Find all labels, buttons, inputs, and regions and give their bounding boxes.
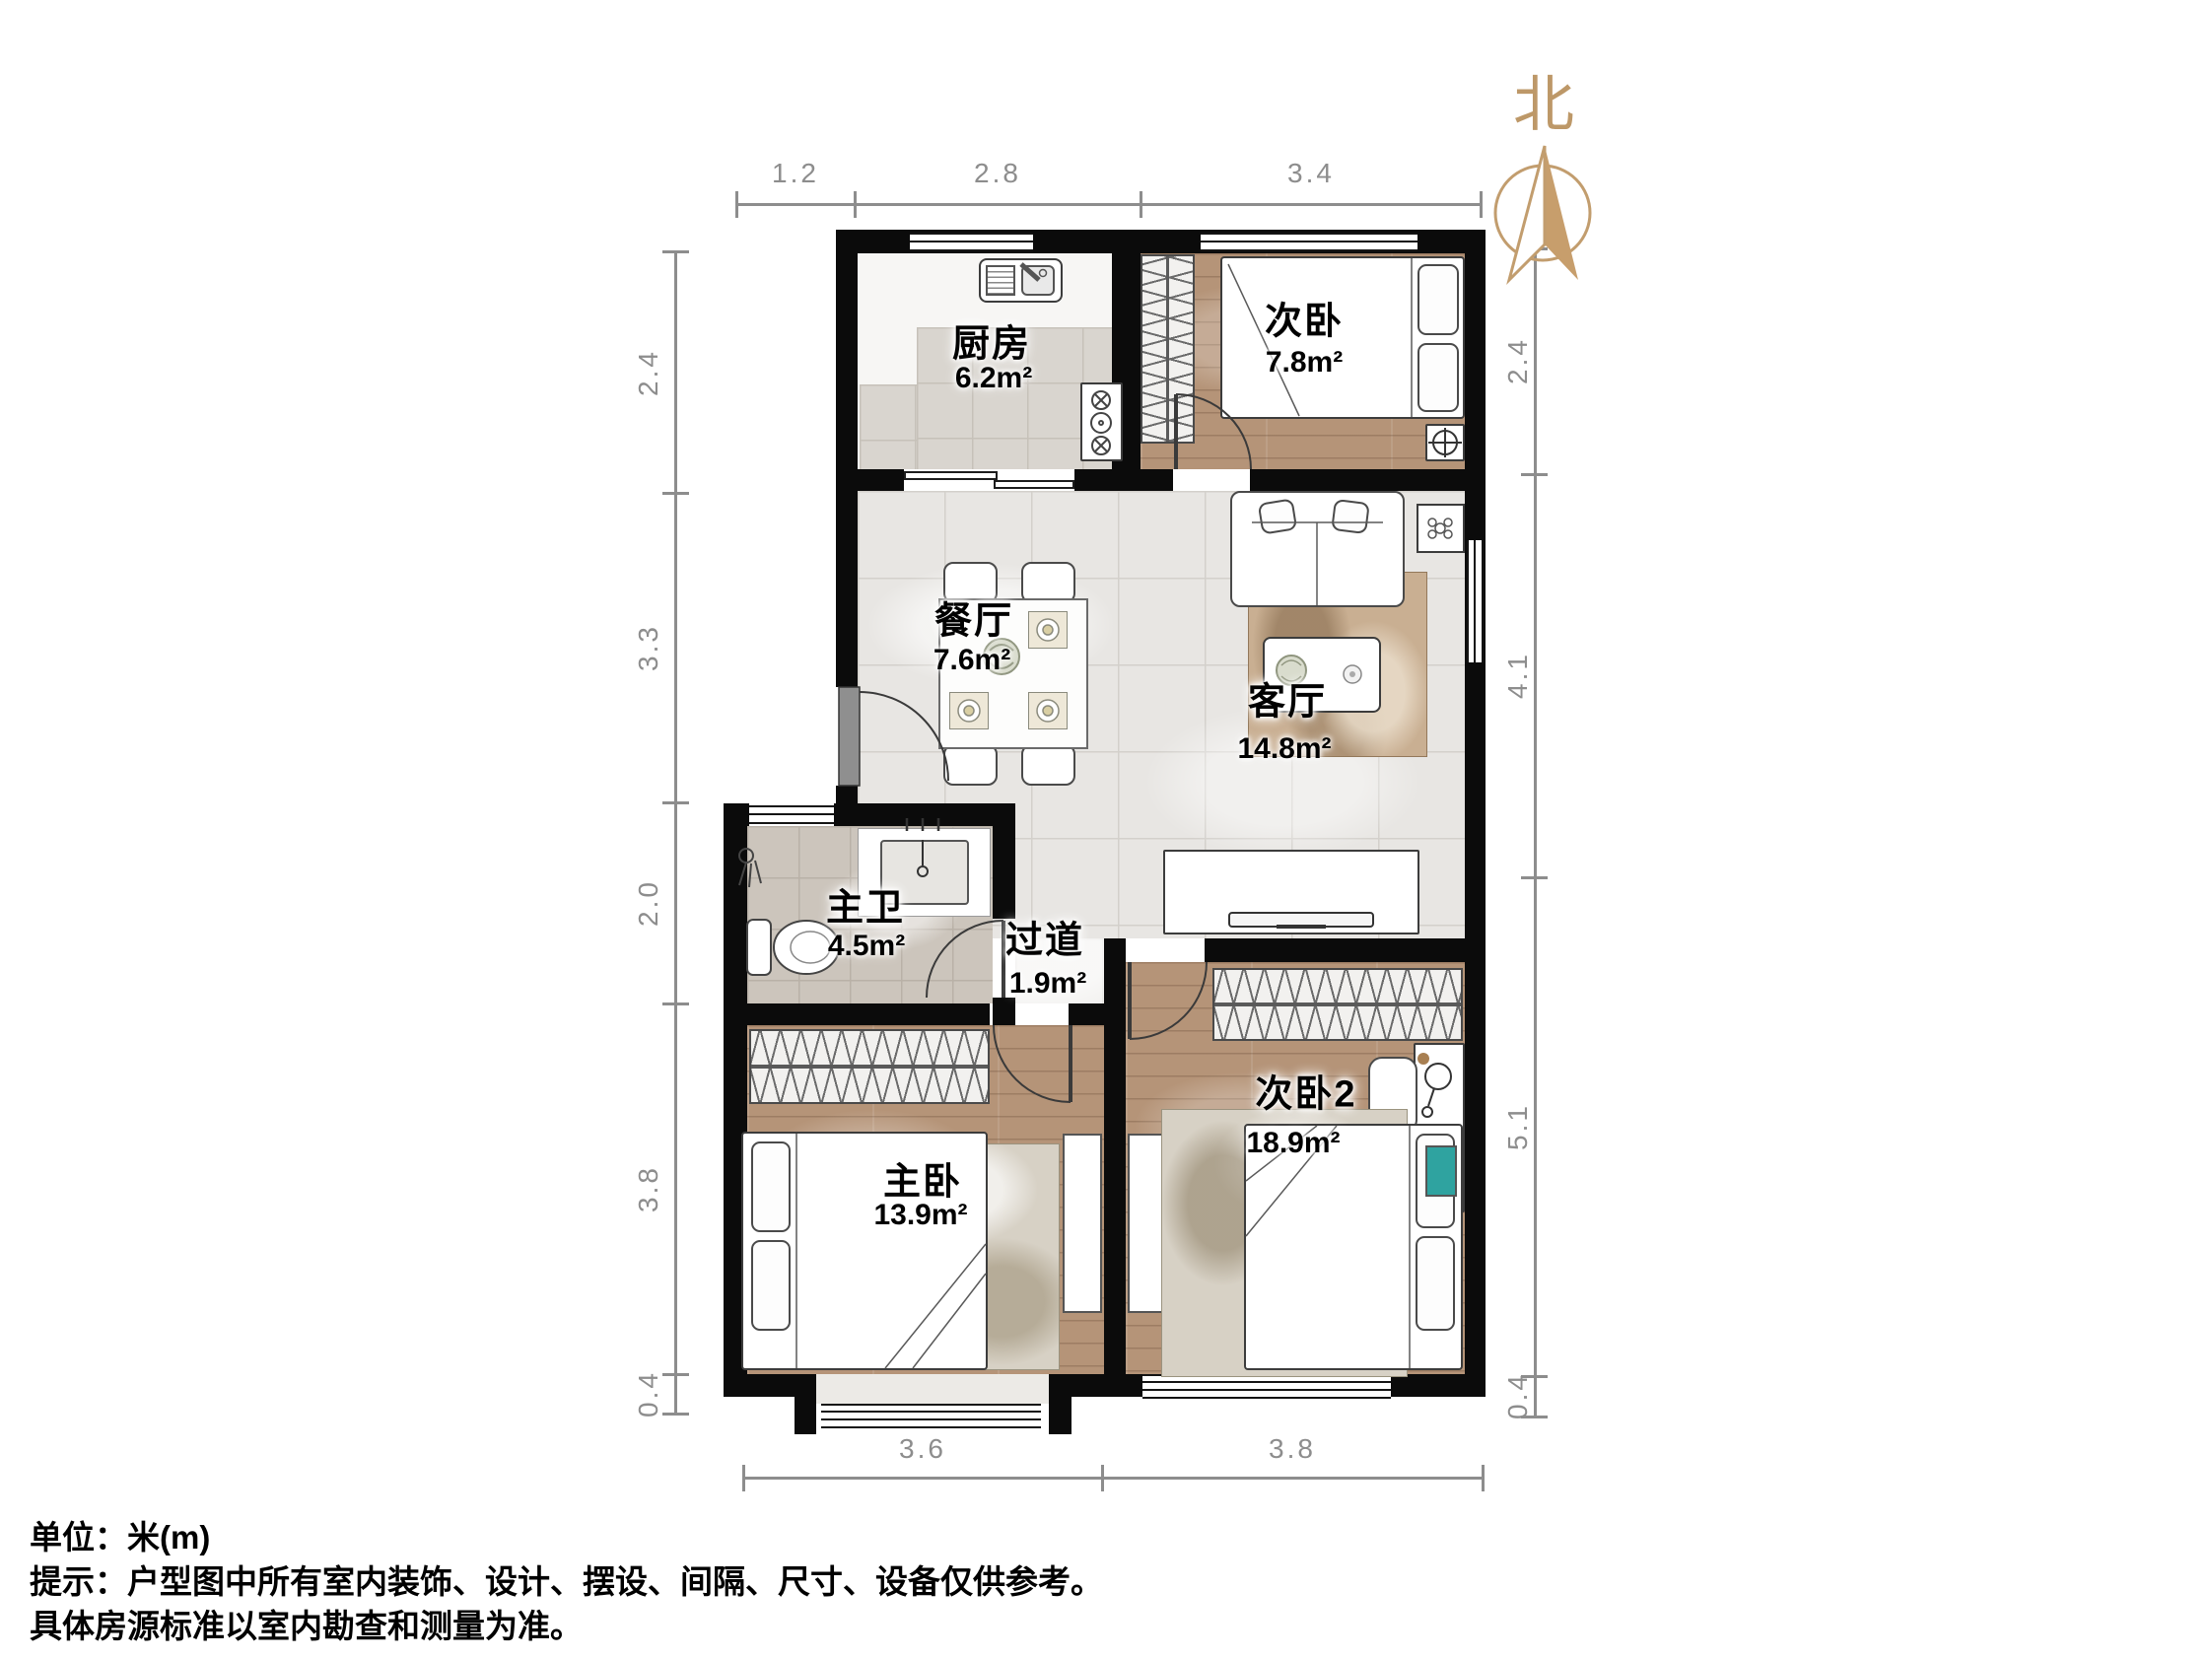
north-label: 北 bbox=[1513, 54, 1574, 143]
room-area-kitchen: 6.2m² bbox=[955, 362, 1032, 395]
room-label-hallway: 过道 bbox=[1005, 910, 1084, 964]
dim-tick bbox=[662, 1373, 689, 1376]
room-label-bedroom2: 次卧 bbox=[1265, 291, 1344, 345]
dim-left-1: 3.3 bbox=[633, 624, 664, 671]
window-kitchen bbox=[910, 233, 1033, 251]
dim-tick bbox=[662, 1413, 689, 1416]
dim-left-4: 0.4 bbox=[633, 1370, 664, 1417]
dining-chair bbox=[1021, 562, 1075, 603]
dim-tick bbox=[662, 1002, 689, 1005]
wall bbox=[724, 1003, 990, 1025]
room-area-bedroom3: 18.9m² bbox=[1246, 1127, 1340, 1160]
dim-tick bbox=[1140, 191, 1142, 218]
sofa-pillow bbox=[1258, 498, 1298, 534]
room-area-dining: 7.6m² bbox=[933, 644, 1010, 677]
pillow bbox=[1417, 264, 1459, 335]
dim-right-3: 0.4 bbox=[1502, 1372, 1534, 1419]
wall bbox=[1049, 1397, 1071, 1434]
sliding-door-kitchen bbox=[994, 480, 1074, 489]
dim-tick bbox=[1101, 1465, 1104, 1491]
wall bbox=[1205, 938, 1465, 962]
pillow bbox=[1416, 1236, 1455, 1331]
dim-left-3: 3.8 bbox=[633, 1165, 664, 1212]
sofa-pillow bbox=[1331, 499, 1370, 534]
window-master-bay bbox=[821, 1404, 1041, 1428]
wall bbox=[836, 469, 904, 491]
placemat bbox=[949, 692, 989, 729]
dim-tick bbox=[1480, 191, 1483, 218]
room-area-master-bedroom: 13.9m² bbox=[873, 1199, 967, 1232]
pillow bbox=[751, 1240, 791, 1331]
north-compass-icon bbox=[1495, 146, 1590, 280]
room-label-master-bath: 主卫 bbox=[826, 877, 905, 932]
room-label-master-bedroom: 主卧 bbox=[883, 1151, 962, 1206]
footer-unit-note: 单位：米(m) bbox=[30, 1511, 210, 1558]
dim-tick bbox=[662, 801, 689, 804]
sofa bbox=[1230, 491, 1405, 607]
dim-top-1: 2.8 bbox=[974, 158, 1021, 189]
wall bbox=[834, 803, 1015, 826]
room-area-bedroom2: 7.8m² bbox=[1266, 346, 1343, 380]
dim-right-1: 4.1 bbox=[1502, 652, 1534, 699]
dining-chair bbox=[943, 744, 998, 786]
wall-picture bbox=[1417, 504, 1465, 553]
window-bedroom3 bbox=[1142, 1374, 1391, 1399]
wall bbox=[1465, 253, 1486, 1397]
bay-window-sill bbox=[816, 1374, 1049, 1404]
pillow bbox=[1417, 343, 1459, 412]
kitchen-sink-basin bbox=[1021, 265, 1055, 296]
room-label-kitchen: 厨房 bbox=[952, 313, 1031, 368]
tv-console bbox=[1163, 850, 1419, 934]
dim-tick bbox=[1482, 1465, 1485, 1491]
wardrobe-bedroom3 bbox=[1212, 968, 1463, 1041]
dim-top-0: 1.2 bbox=[772, 158, 819, 189]
dim-tick bbox=[662, 492, 689, 495]
floorplan-canvas: 厨房 6.2m² 次卧 7.8m² 餐厅 7.6m² 客厅 14.8m² 主卫 … bbox=[0, 0, 2212, 1659]
dining-chair bbox=[1021, 744, 1075, 786]
radiator-bedroom2 bbox=[1425, 424, 1465, 461]
room-label-dining: 餐厅 bbox=[934, 590, 1013, 645]
window-master-bath bbox=[749, 805, 834, 824]
room-label-living: 客厅 bbox=[1248, 671, 1327, 726]
dim-tick bbox=[742, 1465, 745, 1491]
footer-tip-line2: 具体房源标准以室内勘查和测量为准。 bbox=[30, 1600, 583, 1647]
wall bbox=[1074, 469, 1112, 491]
dim-tick bbox=[854, 191, 857, 218]
dim-tick bbox=[662, 250, 689, 253]
sliding-door-kitchen bbox=[904, 471, 998, 480]
dim-right-0: 2.4 bbox=[1502, 337, 1534, 384]
wall bbox=[993, 826, 1015, 919]
wall bbox=[1391, 1374, 1486, 1397]
wardrobe-bedroom2 bbox=[1141, 254, 1195, 444]
dim-line-bottom bbox=[743, 1477, 1484, 1480]
kitchen-stove bbox=[1080, 382, 1123, 461]
desk-picture bbox=[1425, 1145, 1457, 1197]
dim-bottom-1: 3.8 bbox=[1269, 1433, 1316, 1465]
window-bedroom2 bbox=[1201, 233, 1417, 251]
window-living bbox=[1467, 540, 1484, 662]
dim-line-right bbox=[1534, 248, 1537, 1417]
footer-tip-line1: 提示：户型图中所有室内装饰、设计、摆设、间隔、尺寸、设备仅供参考。 bbox=[30, 1555, 1103, 1603]
wall bbox=[1104, 938, 1126, 962]
dim-tick bbox=[1521, 247, 1548, 250]
placemat bbox=[1028, 692, 1068, 729]
wall bbox=[1069, 1003, 1126, 1025]
dim-tick bbox=[1521, 876, 1548, 879]
wall bbox=[993, 998, 1015, 1025]
dim-top-2: 3.4 bbox=[1287, 158, 1335, 189]
pillow bbox=[751, 1141, 791, 1232]
partition-panel bbox=[1063, 1134, 1102, 1313]
room-area-living: 14.8m² bbox=[1237, 732, 1331, 766]
room-area-master-bath: 4.5m² bbox=[828, 930, 905, 963]
room-label-bedroom3: 次卧2 bbox=[1255, 1064, 1356, 1118]
dim-right-2: 5.1 bbox=[1502, 1103, 1534, 1150]
dim-line-top bbox=[736, 203, 1482, 206]
wall bbox=[724, 1374, 816, 1397]
dim-left-0: 2.4 bbox=[633, 349, 664, 396]
wall bbox=[724, 803, 749, 826]
wall bbox=[1250, 469, 1465, 491]
wall bbox=[1104, 1025, 1126, 1374]
floor-kitchen-tiles bbox=[860, 384, 917, 469]
wardrobe-master bbox=[749, 1029, 990, 1104]
wall bbox=[1049, 1374, 1142, 1397]
wall bbox=[1141, 469, 1173, 491]
wall bbox=[795, 1397, 816, 1434]
kitchen-sink-drainer bbox=[986, 265, 1015, 296]
dim-bottom-0: 3.6 bbox=[899, 1433, 946, 1465]
dim-left-2: 2.0 bbox=[633, 879, 664, 927]
dim-tick bbox=[1521, 473, 1548, 476]
dim-tick bbox=[735, 191, 738, 218]
room-area-hallway: 1.9m² bbox=[1009, 967, 1086, 1001]
dim-line-left bbox=[674, 251, 677, 1415]
placemat bbox=[1028, 611, 1068, 649]
